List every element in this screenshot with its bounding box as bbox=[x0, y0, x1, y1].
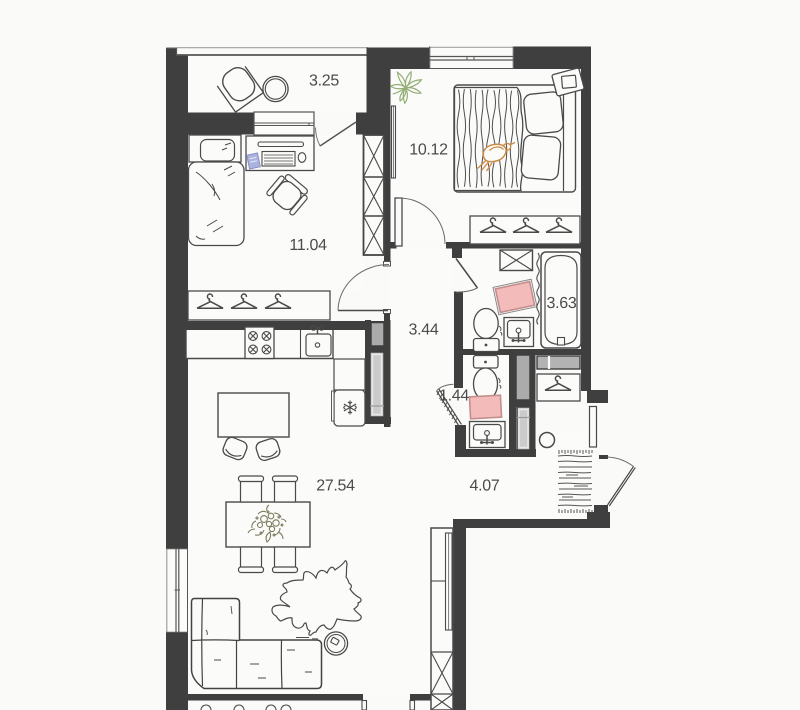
svg-text:10.12: 10.12 bbox=[409, 142, 448, 159]
svg-text:11.04: 11.04 bbox=[289, 237, 327, 254]
svg-text:3.44: 3.44 bbox=[409, 322, 439, 339]
svg-text:3.63: 3.63 bbox=[547, 295, 577, 312]
svg-text:1.44: 1.44 bbox=[439, 387, 469, 404]
svg-text:3.25: 3.25 bbox=[309, 73, 339, 90]
svg-text:4.07: 4.07 bbox=[470, 478, 500, 495]
svg-text:27.54: 27.54 bbox=[316, 478, 355, 495]
